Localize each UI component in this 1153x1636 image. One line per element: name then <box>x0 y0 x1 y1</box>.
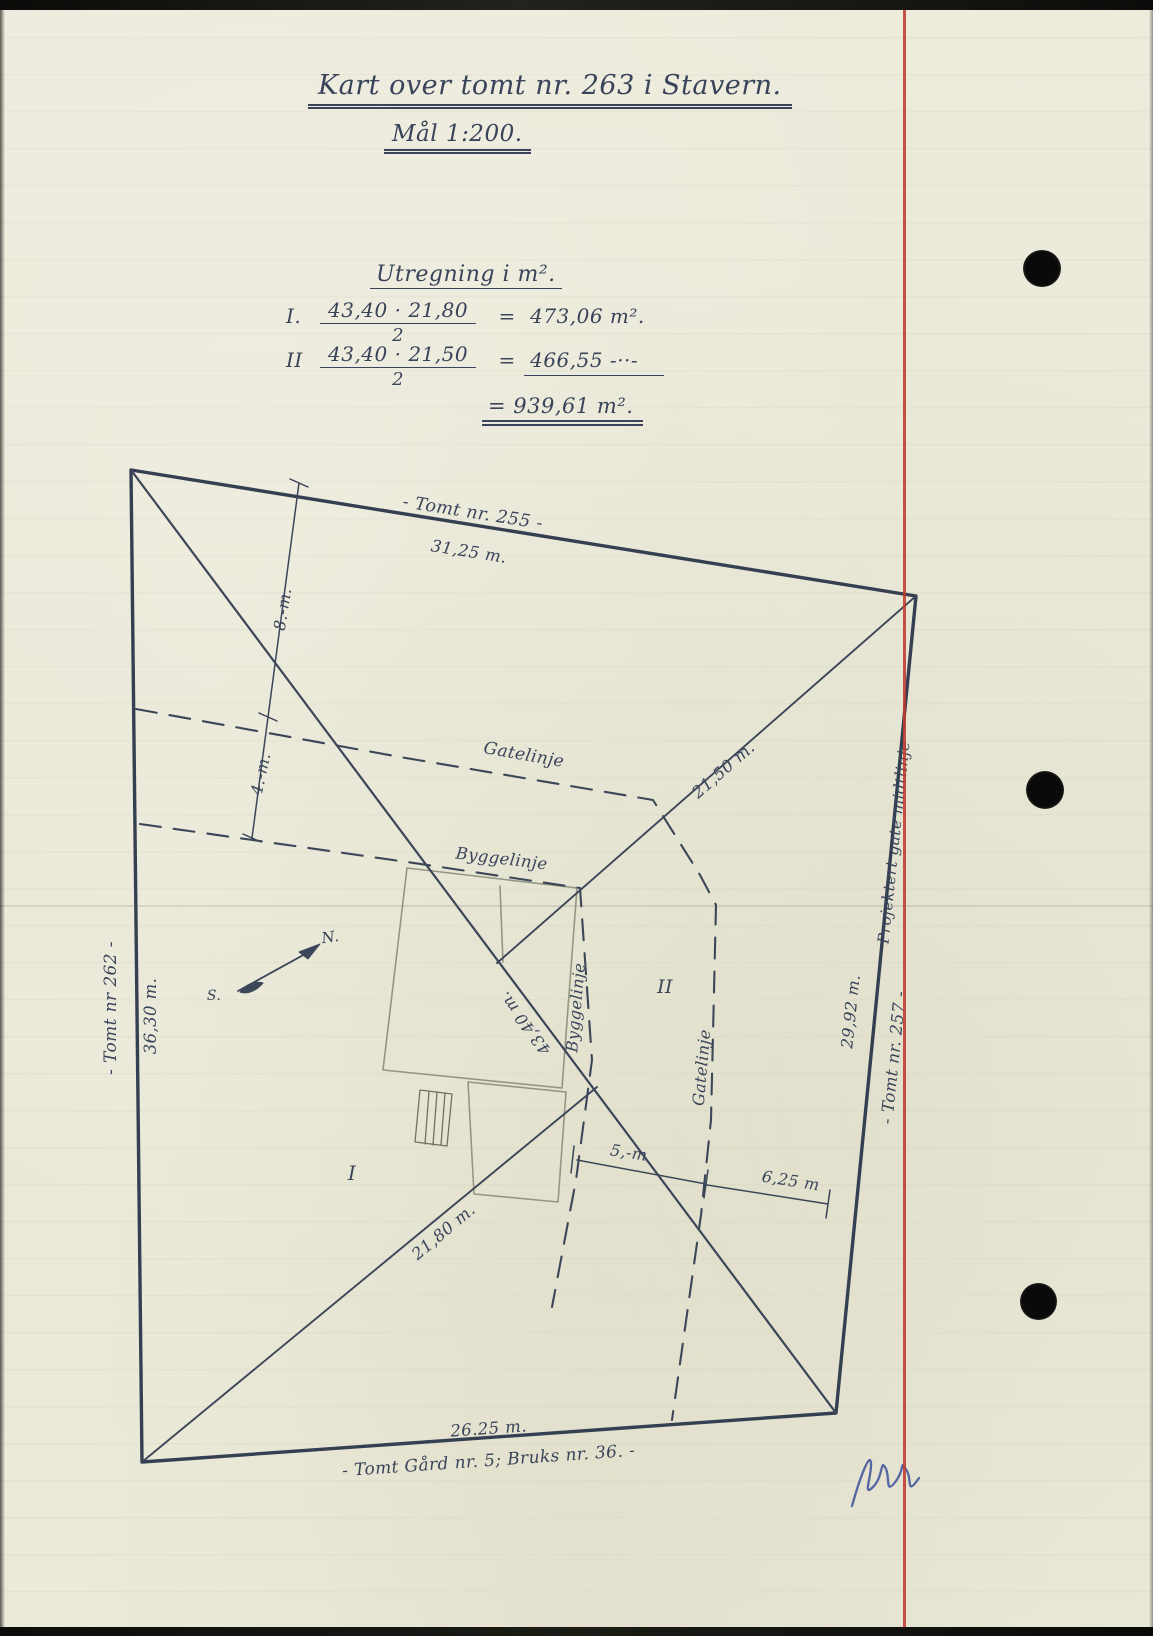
label-byggelinje-upper: Byggelinje <box>454 843 549 873</box>
label-compass-north: N. <box>319 927 340 947</box>
scanned-survey-page: Kart over tomt nr. 263 i Stavern. Mål 1:… <box>0 0 1153 1636</box>
label-offset-625: 6,25 m <box>761 1167 822 1195</box>
label-length-3125: 31,25 m. <box>430 536 509 567</box>
label-compass-south: S. <box>207 988 221 1004</box>
scan-edge-left <box>0 0 5 1636</box>
punch-hole <box>1023 250 1061 287</box>
label-length-2150: 21,50 m. <box>688 738 759 803</box>
byggelinje-dashed-line <box>140 824 592 1307</box>
label-byggelinje-east: Byggelinje <box>562 962 589 1054</box>
label-offset-5m: 5,-m <box>609 1140 649 1165</box>
red-margin-line <box>903 0 906 1636</box>
label-length-2992: 29,92 m. <box>837 973 864 1050</box>
scan-edge-top <box>0 0 1153 10</box>
label-offset-4m: 4.-m. <box>247 751 275 798</box>
gatelinje-dashed-line <box>136 709 716 1420</box>
label-length-2180: 21,80 m. <box>407 1200 479 1264</box>
plot-boundary <box>131 470 916 1462</box>
plot-map-drawing: - Tomt nr. 255 - 31,25 m. - Tomt nr 262 … <box>0 0 1153 1636</box>
height-line-lower <box>142 1087 597 1462</box>
diagonal-line <box>131 470 836 1413</box>
signature <box>852 1460 919 1506</box>
label-tomt-gaard-5-bruks-36: - Tomt Gård nr. 5; Bruks nr. 36. - <box>341 1441 635 1481</box>
label-tomt-255: - Tomt nr. 255 - <box>401 492 544 534</box>
label-offset-8m: 8.-m. <box>270 586 295 631</box>
label-length-3630: 36,30 m. <box>141 978 160 1055</box>
label-projektert-gate-midtlinje: Projektert gate midtlinje <box>874 740 913 945</box>
punch-hole <box>1020 1283 1057 1320</box>
scan-edge-right <box>1149 0 1153 1636</box>
label-gatelinje-upper: Gatelinje <box>482 738 566 772</box>
building-hatched-annex <box>415 1090 452 1146</box>
north-arrow <box>238 944 320 993</box>
label-tomt-262: - Tomt nr 262 - <box>101 941 121 1075</box>
label-region-one: I <box>347 1161 357 1185</box>
paper-crease <box>0 905 1153 907</box>
label-region-two: II <box>656 976 673 998</box>
scan-edge-bottom <box>0 1627 1153 1636</box>
punch-hole <box>1026 771 1064 809</box>
label-gatelinje-east: Gatelinje <box>689 1028 715 1106</box>
